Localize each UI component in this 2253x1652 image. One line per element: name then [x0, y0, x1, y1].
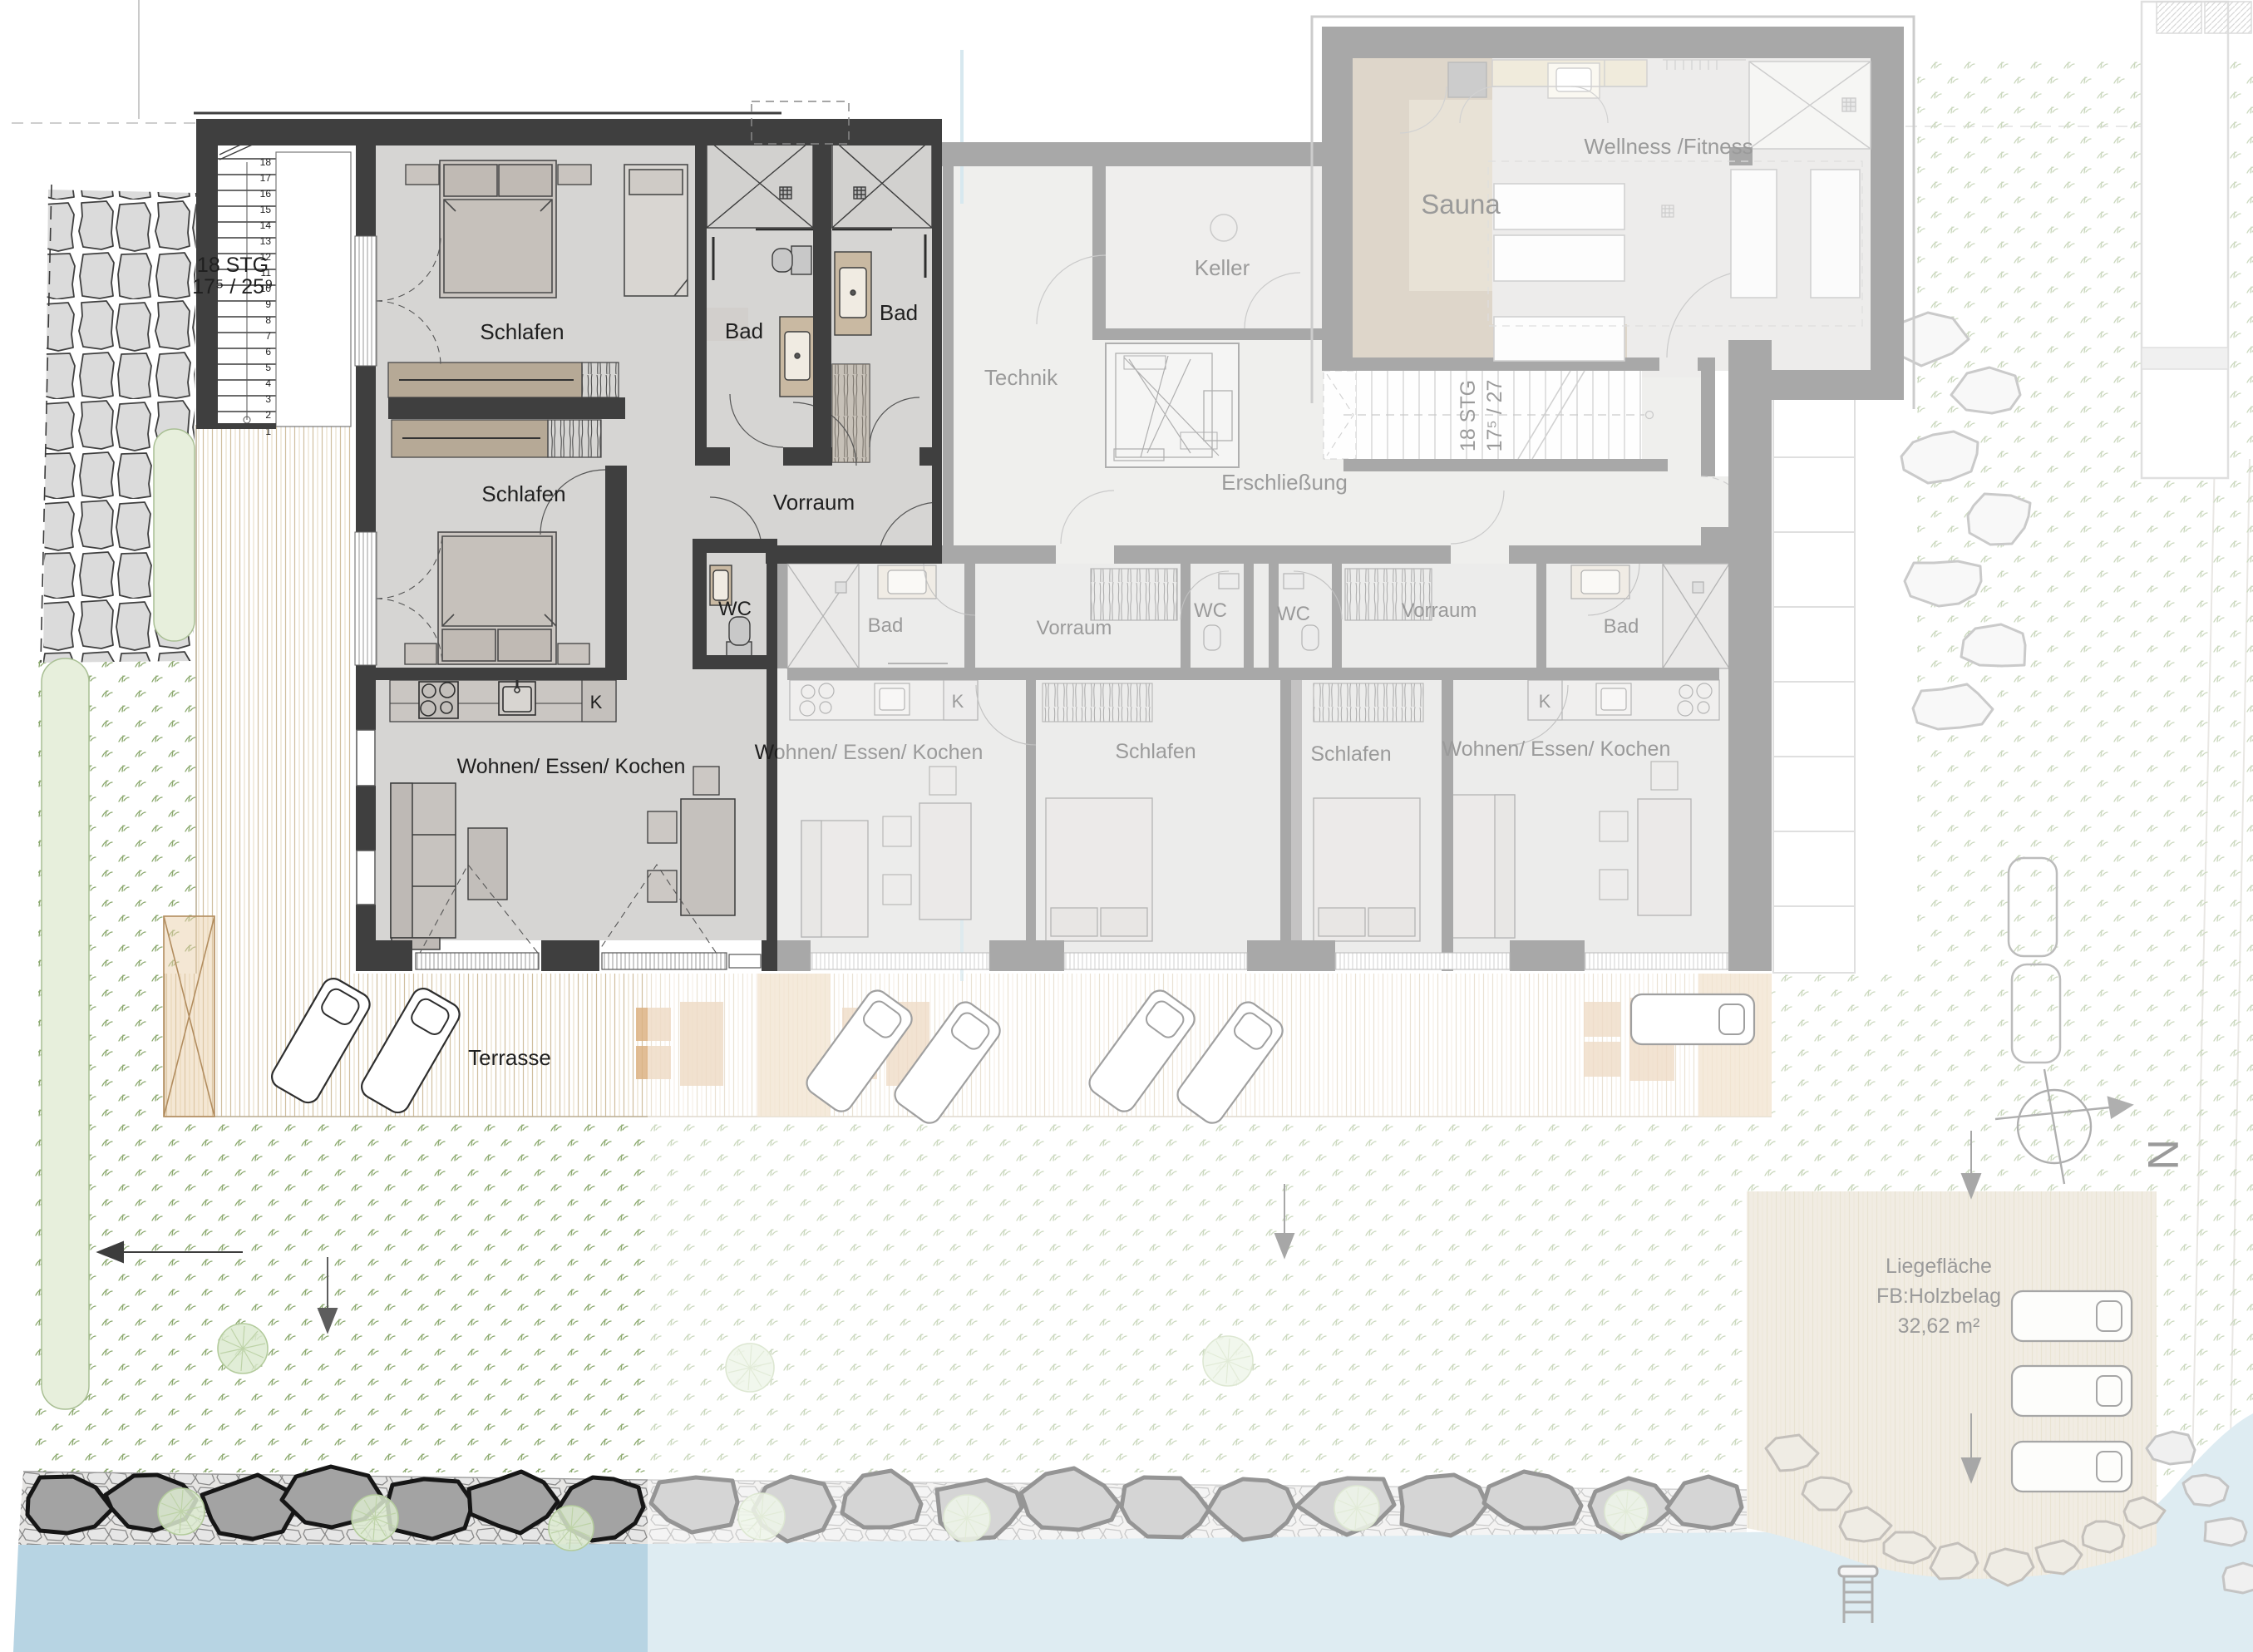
svg-text:Schlafen: Schlafen: [480, 319, 564, 344]
svg-text:3: 3: [265, 393, 271, 405]
svg-text:Terrasse: Terrasse: [468, 1045, 551, 1070]
svg-text:Wohnen/ Essen/ Kochen: Wohnen/ Essen/ Kochen: [457, 755, 686, 778]
svg-text:WC: WC: [718, 598, 752, 620]
svg-text:4: 4: [265, 377, 271, 389]
svg-text:6: 6: [265, 346, 271, 358]
svg-text:7: 7: [265, 330, 271, 342]
svg-text:K: K: [590, 692, 603, 713]
svg-text:8: 8: [265, 314, 271, 326]
svg-text:5: 5: [265, 362, 271, 373]
svg-text:16: 16: [260, 188, 272, 200]
svg-text:Schlafen: Schlafen: [481, 481, 565, 506]
svg-text:9: 9: [265, 298, 271, 310]
svg-text:Bad: Bad: [880, 300, 918, 325]
svg-text:14: 14: [260, 219, 272, 231]
svg-text:18: 18: [260, 156, 272, 168]
svg-text:17⁵ / 25⁹: 17⁵ / 25⁹: [192, 275, 274, 298]
svg-text:Bad: Bad: [725, 318, 763, 343]
svg-text:17: 17: [260, 172, 272, 184]
svg-text:18 STG: 18 STG: [197, 254, 269, 277]
svg-text:Vorraum: Vorraum: [773, 490, 855, 515]
svg-text:15: 15: [260, 204, 272, 215]
svg-text:2: 2: [265, 409, 271, 421]
svg-text:13: 13: [260, 235, 272, 247]
